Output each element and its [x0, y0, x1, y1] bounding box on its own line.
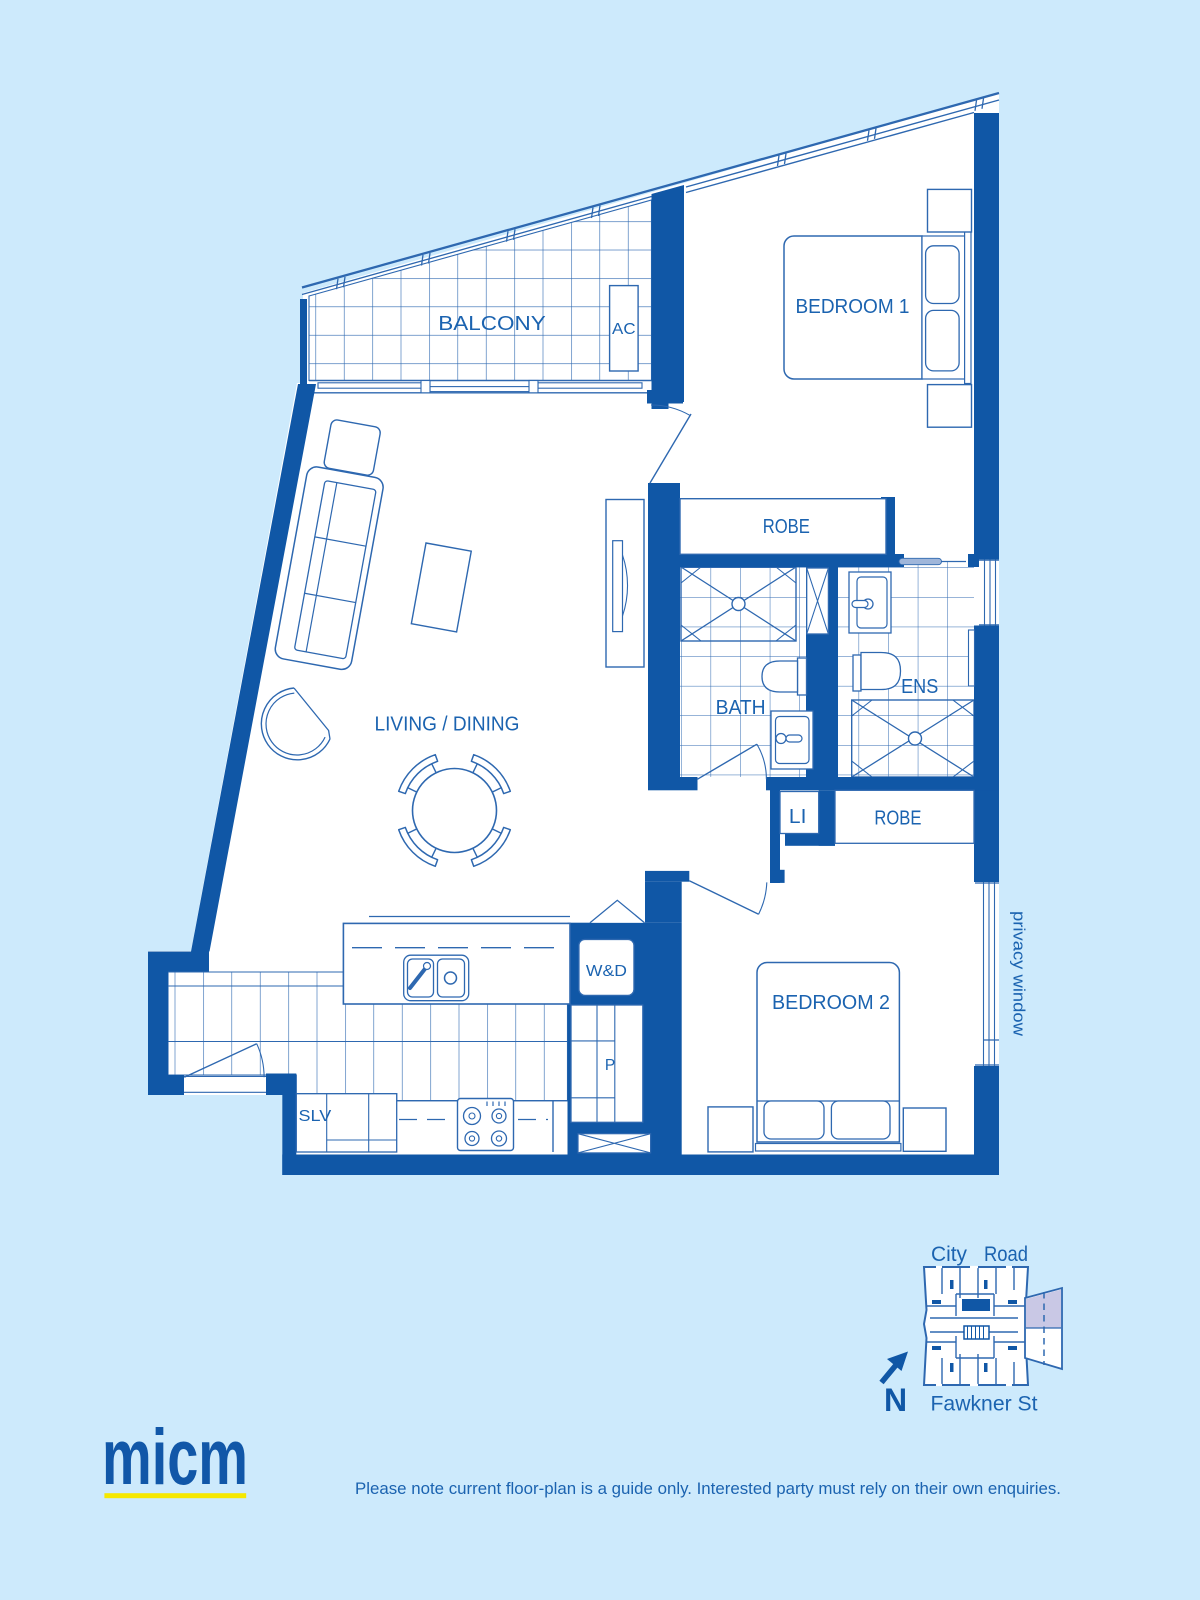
svg-text:BATH: BATH — [716, 697, 766, 719]
svg-text:privacy window: privacy window — [1010, 911, 1028, 1036]
svg-text:P: P — [605, 1057, 615, 1074]
svg-text:N: N — [884, 1382, 907, 1418]
svg-text:ROBE: ROBE — [874, 808, 921, 830]
svg-text:ROBE: ROBE — [763, 516, 810, 538]
svg-text:LI: LI — [789, 806, 807, 828]
svg-text:BEDROOM 1: BEDROOM 1 — [796, 296, 910, 318]
svg-text:SLV: SLV — [299, 1108, 332, 1125]
svg-text:ENS: ENS — [901, 676, 938, 698]
svg-text:Please note current floor-plan: Please note current floor-plan is a guid… — [355, 1480, 1061, 1498]
svg-text:BALCONY: BALCONY — [438, 313, 545, 335]
svg-text:micm: micm — [102, 1412, 248, 1501]
svg-text:AC: AC — [612, 321, 636, 338]
svg-text:Road: Road — [984, 1243, 1028, 1266]
svg-text:Fawkner St: Fawkner St — [931, 1393, 1038, 1416]
svg-text:W&D: W&D — [586, 963, 627, 980]
svg-text:LIVING / DINING: LIVING / DINING — [375, 714, 520, 736]
svg-text:BEDROOM 2: BEDROOM 2 — [772, 992, 890, 1014]
svg-text:City: City — [931, 1243, 967, 1266]
